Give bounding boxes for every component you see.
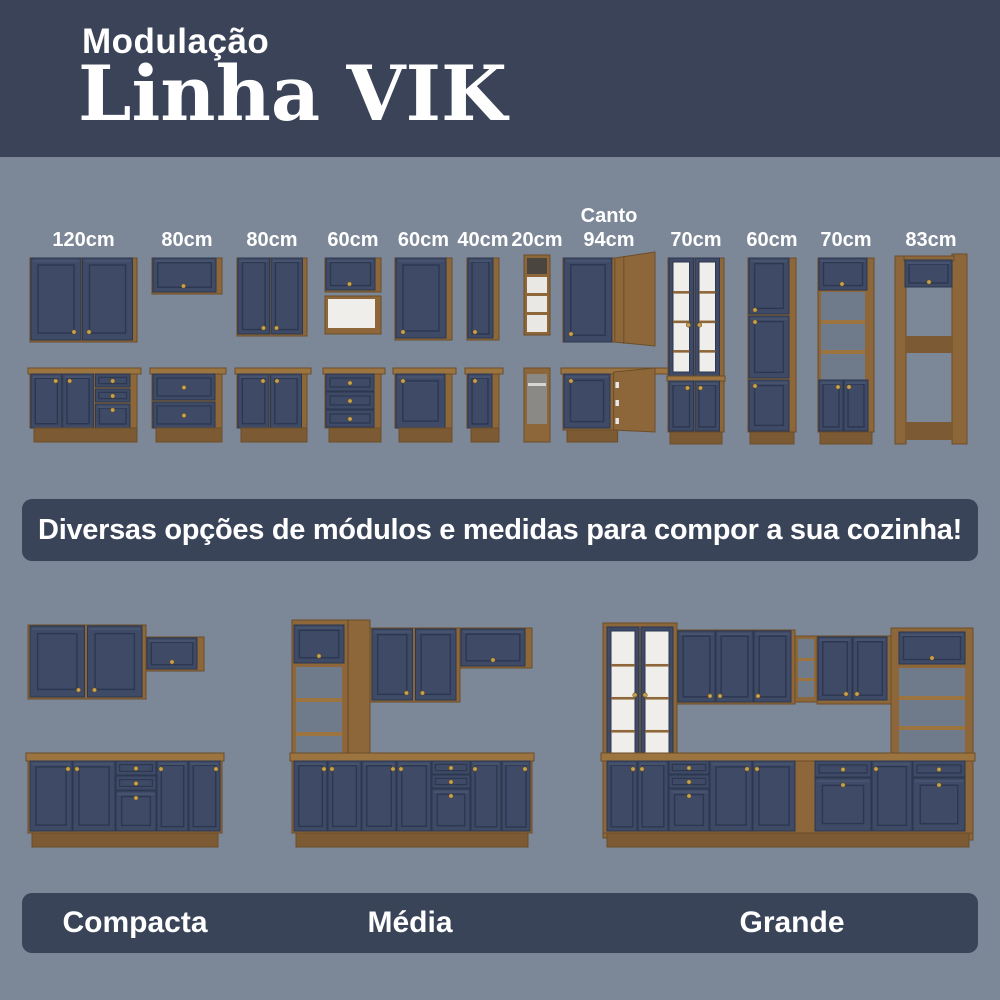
module-120cm-figure: 120cm xyxy=(28,229,141,442)
header-band: Modulação Linha VIK xyxy=(0,0,1000,157)
tagline-text: Diversas opções de módulos e medidas par… xyxy=(38,514,962,547)
module-80cm-figure: 80cm xyxy=(150,229,226,442)
svg-text:60cm: 60cm xyxy=(746,229,797,251)
svg-text:60cm: 60cm xyxy=(398,229,449,251)
module-canto-94cm-figure: Canto94cm xyxy=(561,205,679,442)
module-70cm-figure: 70cm xyxy=(667,229,725,444)
module-60cm-figure: 60cm xyxy=(393,229,456,442)
module-60cm-figure: 60cm xyxy=(746,229,797,444)
kitchen-label-grande: Grande xyxy=(739,906,844,940)
svg-text:120cm: 120cm xyxy=(52,229,114,251)
module-40cm-figure: 40cm xyxy=(457,229,508,442)
module-70cm-figure: 70cm xyxy=(818,229,874,444)
module-20cm-figure: 20cm xyxy=(511,229,562,442)
module-80cm-figure: 80cm xyxy=(235,229,311,442)
svg-text:83cm: 83cm xyxy=(905,229,956,251)
svg-text:70cm: 70cm xyxy=(670,229,721,251)
svg-text:60cm: 60cm xyxy=(327,229,378,251)
svg-text:40cm: 40cm xyxy=(457,229,508,251)
svg-text:80cm: 80cm xyxy=(246,229,297,251)
kitchen-grande-figure xyxy=(601,623,975,847)
kitchen-compacta-figure xyxy=(26,625,224,847)
svg-text:70cm: 70cm xyxy=(820,229,871,251)
tagline-banner: Diversas opções de módulos e medidas par… xyxy=(22,499,978,561)
modules-figure: 120cm80cm80cm60cm60cm40cm20cmCanto94cm70… xyxy=(0,200,1000,470)
svg-text:20cm: 20cm xyxy=(511,229,562,251)
kitchen-media-figure xyxy=(290,620,534,847)
kitchens-figure xyxy=(0,600,1000,890)
page-title: Linha VIK xyxy=(78,56,507,132)
kitchen-label-compacta: Compacta xyxy=(62,906,207,940)
kitchen-label-media: Média xyxy=(367,906,452,940)
module-83cm-figure: 83cm xyxy=(895,229,967,444)
kitchen-labels-band: Compacta Média Grande xyxy=(22,893,978,953)
module-60cm-figure: 60cm xyxy=(323,229,385,442)
svg-text:Canto94cm: Canto94cm xyxy=(581,205,638,251)
svg-text:80cm: 80cm xyxy=(161,229,212,251)
page-background: Modulação Linha VIK 120cm80cm80cm60cm60c… xyxy=(0,0,1000,1000)
